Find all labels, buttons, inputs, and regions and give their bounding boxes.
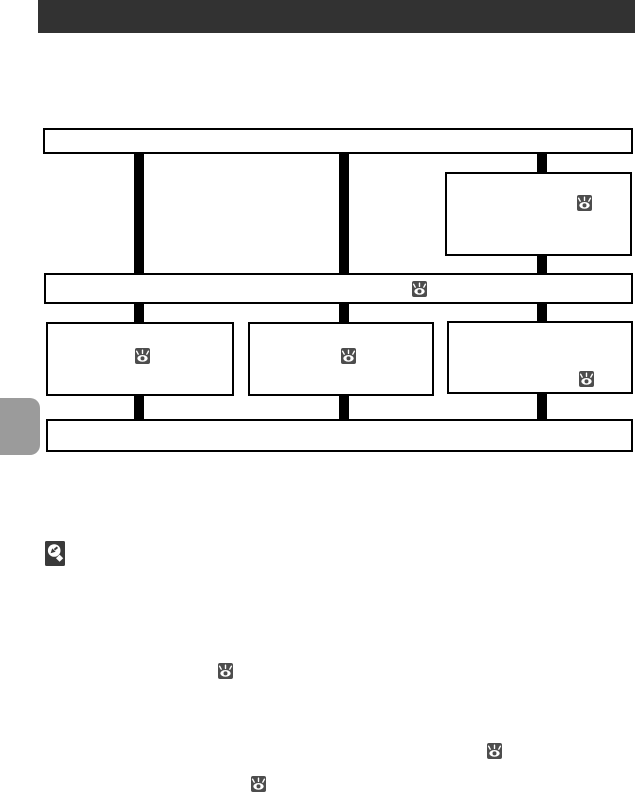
eye-icon — [412, 281, 427, 297]
eye-icon — [487, 743, 502, 759]
flowchart-box-right-detail — [445, 172, 632, 256]
chapter-header-bar — [38, 0, 635, 33]
connector-bar — [134, 304, 144, 322]
eye-icon — [341, 348, 356, 364]
flowchart-box-bottom-right — [447, 321, 633, 394]
connector-bar — [134, 396, 144, 419]
flowchart-box-top — [43, 128, 633, 154]
eye-icon — [218, 663, 233, 679]
connector-bar — [537, 154, 547, 172]
eye-icon — [251, 776, 266, 792]
eye-icon — [135, 348, 150, 364]
manual-page — [0, 0, 635, 799]
connector-bar — [134, 154, 144, 273]
connector-bar — [339, 154, 349, 273]
flowchart-box-footer — [46, 419, 633, 452]
connector-bar — [537, 304, 547, 321]
connector-bar — [339, 396, 349, 419]
flowchart-box-middle — [44, 273, 633, 304]
eye-icon — [579, 371, 594, 387]
connector-bar — [537, 256, 547, 273]
chapter-tab — [0, 398, 40, 455]
magnifier-note-icon — [45, 541, 65, 566]
connector-bar — [537, 394, 547, 419]
eye-icon — [577, 195, 592, 211]
connector-bar — [339, 304, 349, 322]
